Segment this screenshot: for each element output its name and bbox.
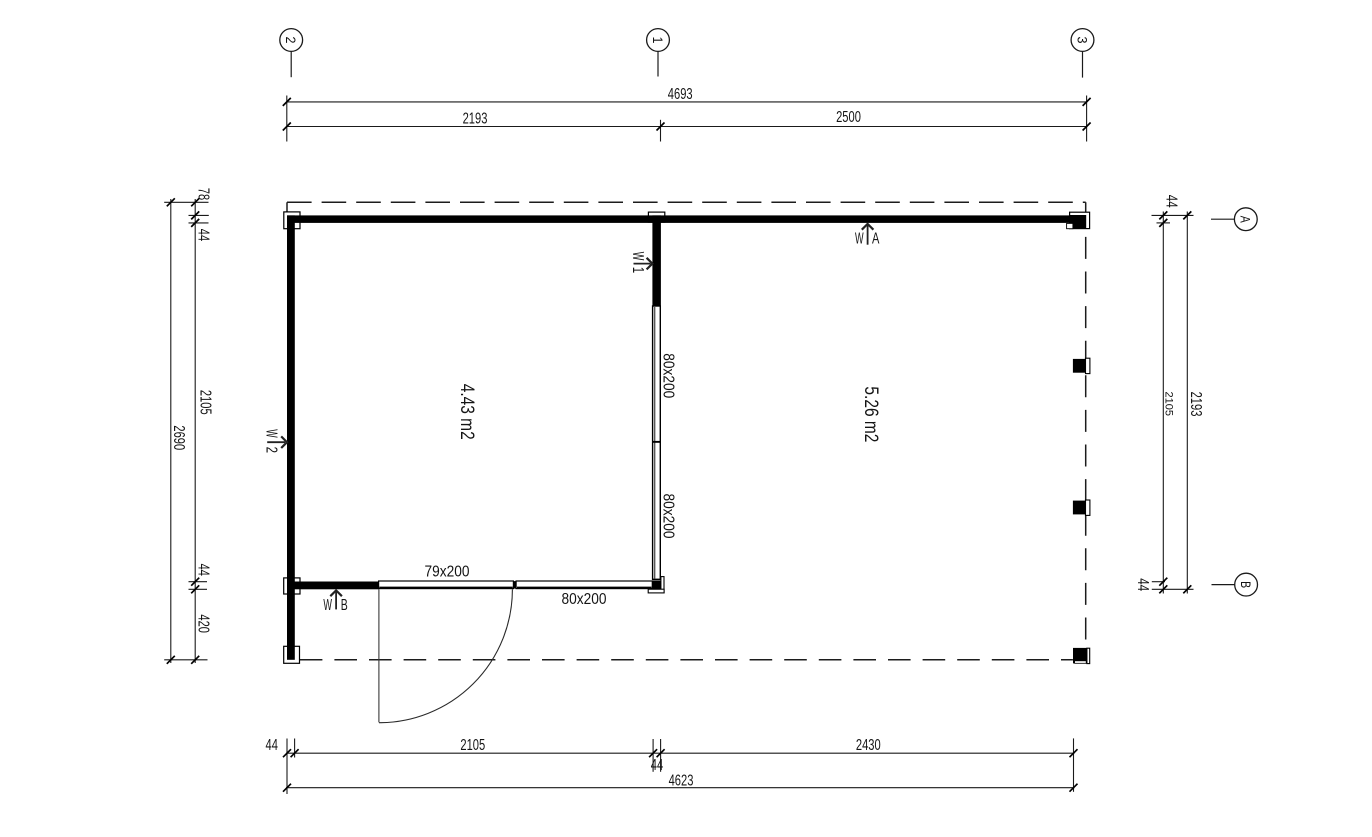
- svg-text:80x200: 80x200: [659, 494, 676, 539]
- svg-text:44: 44: [1134, 578, 1151, 591]
- svg-text:W: W: [629, 252, 646, 261]
- svg-text:5.26 m2: 5.26 m2: [860, 386, 881, 442]
- svg-text:B: B: [341, 597, 348, 614]
- svg-text:W: W: [323, 597, 332, 614]
- svg-text:44: 44: [1162, 195, 1179, 208]
- svg-text:44: 44: [195, 564, 212, 576]
- svg-text:2: 2: [283, 37, 299, 44]
- svg-text:2430: 2430: [856, 737, 881, 754]
- svg-text:79x200: 79x200: [425, 564, 470, 581]
- svg-text:44: 44: [651, 757, 663, 774]
- svg-text:B: B: [1238, 581, 1254, 588]
- svg-text:4693: 4693: [668, 86, 693, 103]
- svg-text:2500: 2500: [836, 109, 861, 126]
- svg-text:2105: 2105: [1163, 392, 1175, 417]
- svg-text:2690: 2690: [170, 425, 187, 450]
- svg-text:4623: 4623: [669, 772, 694, 789]
- svg-text:80x200: 80x200: [659, 353, 676, 398]
- svg-text:2193: 2193: [1187, 392, 1204, 417]
- svg-text:1: 1: [629, 267, 646, 273]
- svg-text:78: 78: [195, 188, 212, 200]
- svg-text:W: W: [855, 231, 864, 248]
- svg-text:W: W: [263, 429, 280, 438]
- svg-text:2193: 2193: [463, 111, 488, 128]
- svg-text:4.43 m2: 4.43 m2: [456, 384, 477, 440]
- svg-text:A: A: [1238, 216, 1254, 223]
- svg-text:2105: 2105: [460, 737, 485, 754]
- svg-text:80x200: 80x200: [562, 591, 607, 608]
- svg-text:2105: 2105: [197, 390, 214, 415]
- svg-text:44: 44: [195, 229, 212, 241]
- svg-text:3: 3: [1074, 37, 1090, 44]
- svg-text:2: 2: [263, 447, 280, 453]
- svg-text:420: 420: [195, 614, 212, 633]
- svg-text:1: 1: [650, 37, 666, 44]
- svg-text:44: 44: [266, 737, 278, 754]
- svg-text:A: A: [872, 231, 880, 248]
